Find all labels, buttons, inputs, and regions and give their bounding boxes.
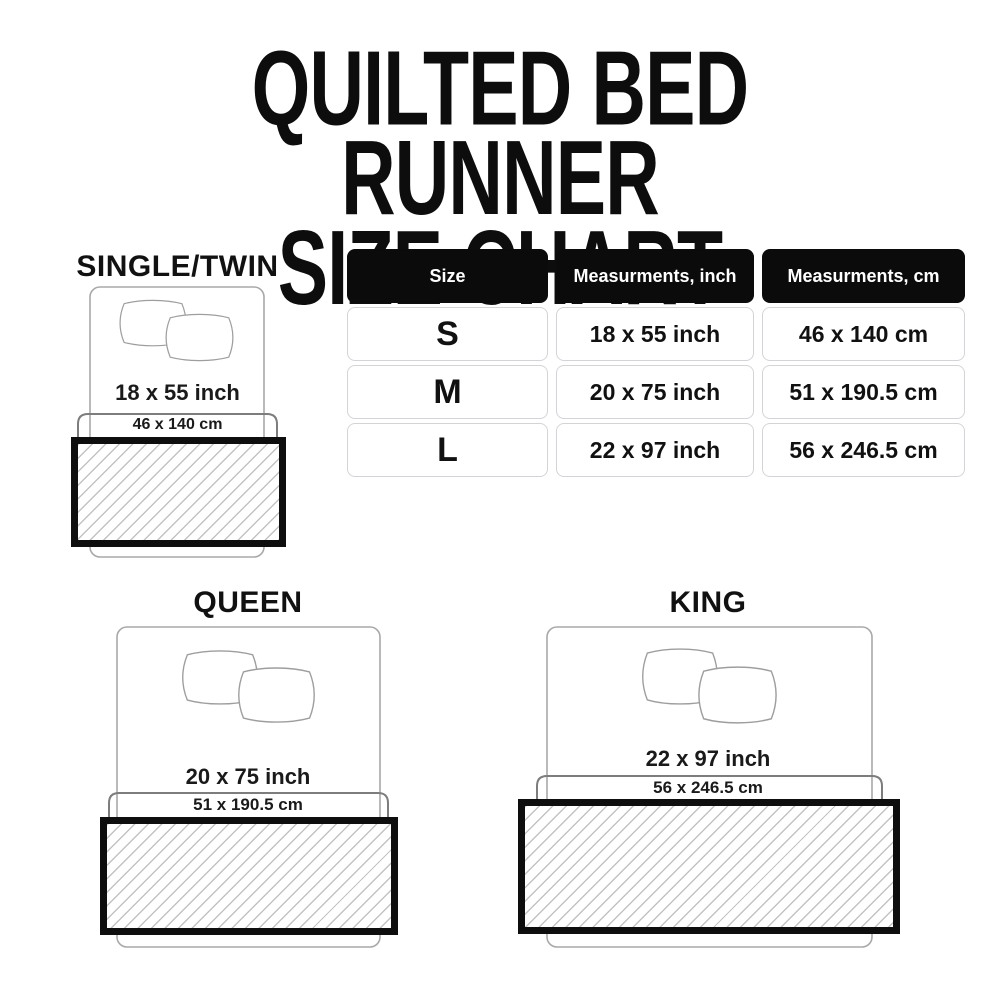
table-cell-size-m: M xyxy=(347,365,548,419)
diagram-king: KING 22 x 97 inch 56 x 246.5 cm xyxy=(508,583,908,963)
pillow-front-icon xyxy=(166,314,233,360)
queen-cm-measurement: 51 x 190.5 cm xyxy=(48,796,448,813)
king-cm-measurement: 56 x 246.5 cm xyxy=(508,779,908,796)
table-cell-inch-s: 18 x 55 inch xyxy=(556,307,754,361)
size-table: Size Measurments, inch Measurments, cm S… xyxy=(347,249,965,477)
single-cm-measurement: 46 x 140 cm xyxy=(45,417,310,433)
queen-inch-measurement: 20 x 75 inch xyxy=(48,766,448,788)
size-chart-infographic: QUILTED BED RUNNER SIZE CHART Size Measu… xyxy=(0,0,1000,1000)
pillow-front-icon xyxy=(239,668,314,722)
runner-swatch-queen xyxy=(100,817,398,935)
diagram-single-twin: SINGLE/TWIN 18 x 55 inch 46 x 140 cm xyxy=(45,245,310,575)
table-cell-size-s: S xyxy=(347,307,548,361)
page-title-line1: QUILTED BED RUNNER xyxy=(90,44,910,223)
size-table-header-inch: Measurments, inch xyxy=(556,249,754,303)
table-cell-inch-m: 20 x 75 inch xyxy=(556,365,754,419)
size-table-header-cm: Measurments, cm xyxy=(762,249,965,303)
king-inch-measurement: 22 x 97 inch xyxy=(508,748,908,770)
table-cell-size-l: L xyxy=(347,423,548,477)
table-cell-cm-m: 51 x 190.5 cm xyxy=(762,365,965,419)
pillow-front-icon xyxy=(699,667,776,723)
size-table-header-size: Size xyxy=(347,249,548,303)
table-cell-cm-s: 46 x 140 cm xyxy=(762,307,965,361)
table-cell-inch-l: 22 x 97 inch xyxy=(556,423,754,477)
diagram-queen: QUEEN 20 x 75 inch 51 x 190.5 cm xyxy=(48,583,448,963)
runner-swatch-single xyxy=(71,437,286,547)
single-inch-measurement: 18 x 55 inch xyxy=(45,382,310,404)
runner-swatch-king xyxy=(518,799,900,934)
table-cell-cm-l: 56 x 246.5 cm xyxy=(762,423,965,477)
